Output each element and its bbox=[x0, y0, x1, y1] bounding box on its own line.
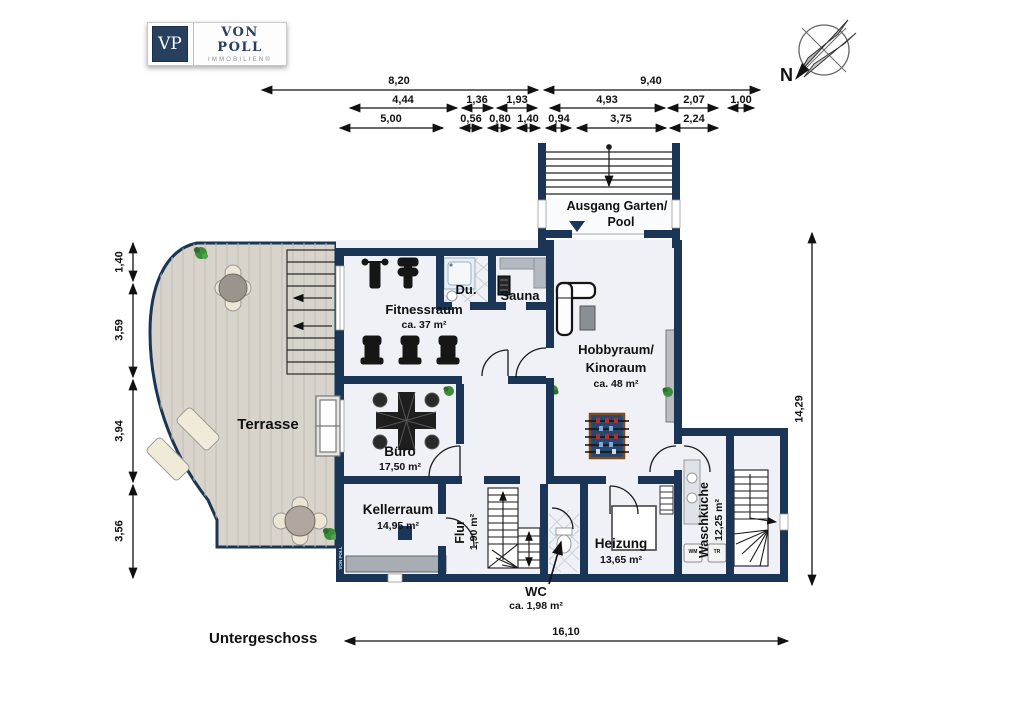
dim-left-359: 3,59 bbox=[115, 319, 126, 340]
label-ausgang-line1: Ausgang Garten/ bbox=[567, 200, 668, 213]
label-heizung: Heizung bbox=[595, 537, 648, 551]
shelf-outline bbox=[346, 556, 446, 572]
label-wc: WC bbox=[525, 585, 547, 598]
wall-watermark: VON POLL bbox=[339, 546, 344, 569]
label-heizung-area: 13,65 m² bbox=[600, 555, 642, 566]
vonpoll-logo-subtitle: IMMOBILIEN® bbox=[196, 57, 284, 63]
vonpoll-logo-monogram: VP bbox=[152, 26, 188, 62]
label-fitnessraum: Fitnessraum bbox=[385, 303, 462, 316]
label-waschkueche: Waschküche bbox=[698, 482, 711, 558]
label-hobbyraum-line2: Kinoraum bbox=[586, 361, 647, 374]
dim-top3-056: 0,56 bbox=[460, 114, 481, 125]
label-buero-area: 17,50 m² bbox=[379, 462, 421, 473]
label-waschkueche-area: 12,25 m² bbox=[714, 499, 725, 541]
window-bay bbox=[316, 396, 340, 456]
dim-top3-375: 3,75 bbox=[610, 114, 631, 125]
dim-top2-136: 1,36 bbox=[466, 95, 487, 106]
dim-bottom-1610: 16,10 bbox=[552, 627, 580, 638]
dim-top3-140: 1,40 bbox=[517, 114, 538, 125]
vonpoll-logo: VP VON POLL IMMOBILIEN® bbox=[147, 22, 287, 66]
dim-top2-207: 2,07 bbox=[683, 95, 704, 106]
label-dryer: TR bbox=[714, 550, 721, 555]
label-buero: Büro bbox=[384, 445, 416, 459]
dim-left-356: 3,56 bbox=[115, 520, 126, 541]
label-kellerraum: Kellerraum bbox=[363, 503, 434, 517]
label-flur: Flur bbox=[454, 520, 467, 544]
dim-top3-500: 5,00 bbox=[380, 114, 401, 125]
dim-top1-820: 8,20 bbox=[388, 76, 409, 87]
label-wc-area: ca. 1,98 m² bbox=[509, 601, 563, 612]
radiator bbox=[660, 486, 673, 514]
label-dusche: Du. bbox=[456, 283, 477, 296]
label-fitnessraum-area: ca. 37 m² bbox=[402, 320, 447, 331]
floorplan-canvas: VP VON POLL IMMOBILIEN® N 8,20 9,40 4,44… bbox=[0, 0, 1024, 724]
label-sauna: Sauna bbox=[500, 289, 539, 302]
dim-top2-493: 4,93 bbox=[596, 95, 617, 106]
label-kellerraum-area: 14,95 m² bbox=[377, 521, 419, 532]
floorplan-drawing bbox=[0, 0, 1024, 724]
label-hobbyraum-line1: Hobbyraum/ bbox=[578, 343, 654, 356]
dim-left-394: 3,94 bbox=[115, 420, 126, 441]
compass-icon bbox=[795, 20, 856, 80]
vonpoll-logo-name: VON POLL bbox=[196, 25, 284, 55]
dim-top2-444: 4,44 bbox=[392, 95, 413, 106]
dim-left-140: 1,40 bbox=[115, 251, 126, 272]
foosball-table bbox=[585, 414, 629, 458]
dim-top2-100: 1,00 bbox=[730, 95, 751, 106]
dim-top3-224: 2,24 bbox=[683, 114, 704, 125]
dim-right-1429: 14,29 bbox=[795, 395, 806, 423]
label-ausgang-line2: Pool bbox=[607, 216, 634, 229]
floor-title: Untergeschoss bbox=[209, 631, 317, 646]
dim-top1-940: 9,40 bbox=[640, 76, 661, 87]
label-flur-area: 1,90 m² bbox=[469, 514, 480, 550]
dim-top2-193: 1,93 bbox=[506, 95, 527, 106]
dim-top3-080: 0,80 bbox=[489, 114, 510, 125]
label-hobbyraum-area: ca. 48 m² bbox=[594, 379, 639, 390]
dim-top3-094: 0,94 bbox=[548, 114, 569, 125]
label-terrasse: Terrasse bbox=[237, 417, 298, 432]
office-desks bbox=[373, 392, 439, 450]
tv-sideboard bbox=[580, 306, 595, 330]
label-washing-machine: WM bbox=[689, 550, 698, 555]
compass-north-label: N bbox=[780, 66, 793, 84]
